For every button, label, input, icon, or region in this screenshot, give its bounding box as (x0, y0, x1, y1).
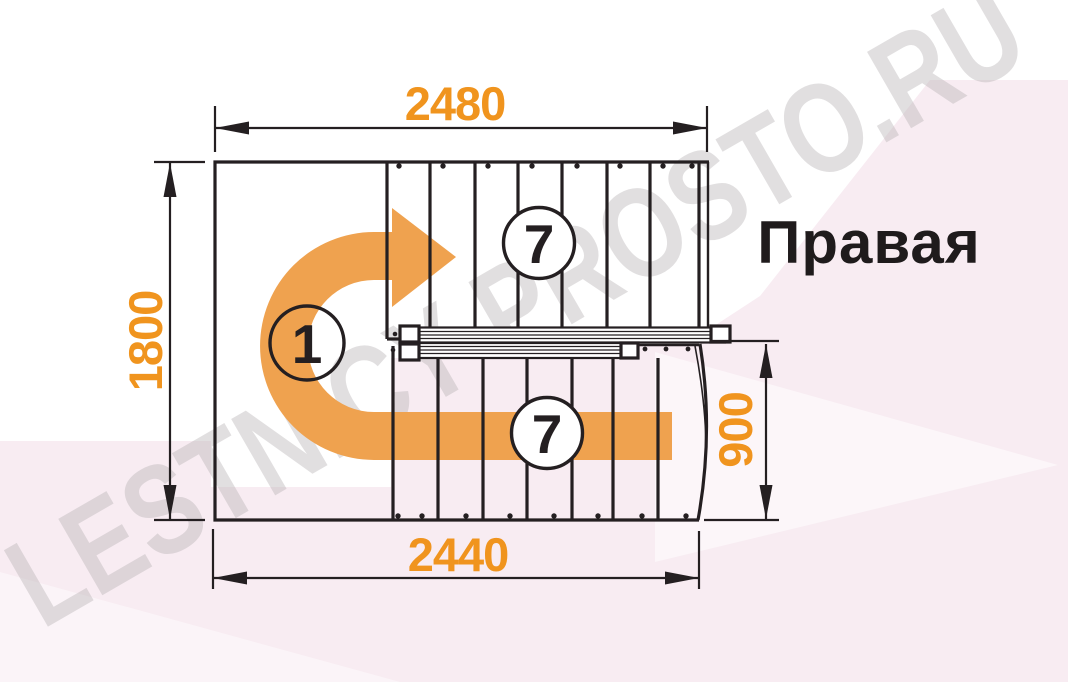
landing-baluster-dot (643, 347, 648, 352)
landing-baluster-dot (664, 347, 669, 352)
baluster-dot (463, 513, 468, 518)
baluster-dot (683, 513, 688, 518)
baluster-dot (396, 163, 401, 168)
stair-plan-canvas: LESTNICY-PROSTO.RU (0, 0, 1068, 682)
walk-arrow-top-stub (374, 232, 393, 280)
baluster-dot (595, 513, 600, 518)
beam-mid-cap (621, 343, 638, 358)
baluster-dot (419, 513, 424, 518)
baluster-dot (639, 513, 644, 518)
dimension-top: 2480 (215, 77, 707, 152)
baluster-dot (440, 163, 445, 168)
landing-baluster-dot (686, 347, 691, 352)
beam-left-bracket-lower (400, 344, 419, 360)
dimension-right-value: 900 (709, 392, 762, 467)
dimension-left-value: 1800 (119, 291, 172, 392)
dimension-bottom-value: 2440 (408, 528, 509, 581)
beam-right-cap (711, 326, 730, 342)
baluster-dot (529, 163, 534, 168)
baluster-dot (574, 163, 579, 168)
turn-marker-number: 1 (292, 313, 323, 375)
lower-steps-number: 7 (532, 403, 563, 465)
baluster-dot (617, 163, 622, 168)
baluster-dot (689, 163, 694, 168)
stair-plan-svg: LESTNICY-PROSTO.RU (0, 0, 1068, 682)
beam-dot (393, 332, 398, 337)
beam-left-bracket-upper (400, 326, 419, 342)
dim-arrow-up-icon (164, 163, 177, 197)
baluster-dot (507, 513, 512, 518)
baluster-dot (551, 513, 556, 518)
baluster-dot (395, 513, 400, 518)
dimension-top-value: 2480 (405, 77, 506, 130)
orientation-label: Правая (757, 209, 981, 276)
dim-arrow-left-icon (215, 122, 249, 135)
baluster-dot (660, 163, 665, 168)
upper-steps-number: 7 (524, 213, 555, 275)
baluster-dot (485, 163, 490, 168)
